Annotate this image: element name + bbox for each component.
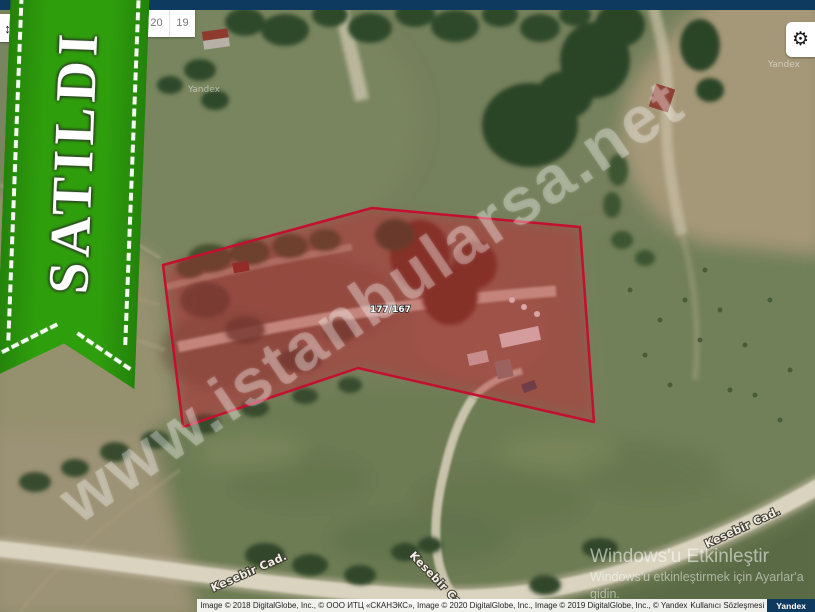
windows-activation-title: Windows'u Etkinleştir [590,545,815,569]
listing-screenshot: 177/167 Kesebir Cad. Kesebir Cad. Kesebi… [0,0,815,612]
windows-activation-subtitle: Windows'u etkinleştirmek için Ayarlar'a … [590,569,815,603]
map-attribution-bar: Image © 2018 DigitalGlobe, Inc., © ООО И… [197,599,815,612]
ribbon-label-box: SATILDI [0,0,150,349]
zoom-level-19-button[interactable]: 19 [169,9,195,37]
attribution-text: Image © 2018 DigitalGlobe, Inc., © ООО И… [200,601,687,610]
terms-of-use-link[interactable]: Kullanıcı Sözleşmesi [690,601,764,610]
attribution-credits: Image © 2018 DigitalGlobe, Inc., © ООО И… [197,599,767,612]
yandex-logo-badge[interactable]: Yandex [767,599,815,612]
sold-ribbon: SATILDI [0,0,150,397]
yandex-watermark-left: Yandex [187,85,221,95]
windows-activation-notice: Windows'u Etkinleştir Windows'u etkinleş… [590,545,815,603]
settings-button[interactable]: ⚙ [786,22,815,57]
sold-ribbon-label: SATILDI [36,28,111,296]
yandex-watermark-right: Yandex [767,60,801,70]
gear-icon: ⚙ [792,28,809,51]
zoom-level-buttons: 20 19 [144,9,195,37]
